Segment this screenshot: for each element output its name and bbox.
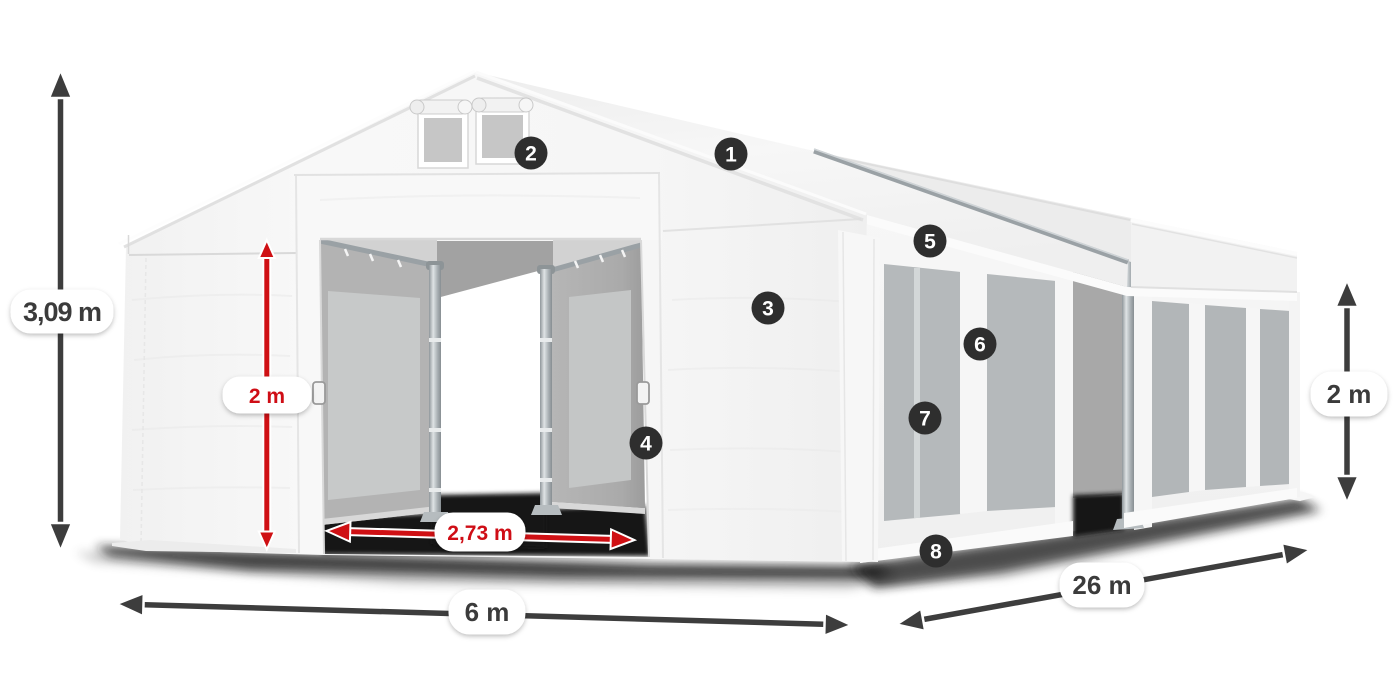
svg-text:2,73 m: 2,73 m [447,522,512,545]
svg-text:6: 6 [974,334,986,357]
svg-text:2 m: 2 m [249,385,285,408]
svg-text:8: 8 [930,541,942,564]
svg-text:26 m: 26 m [1072,570,1131,600]
svg-text:7: 7 [919,408,931,431]
svg-text:2 m: 2 m [1327,379,1372,409]
svg-text:3: 3 [762,298,774,321]
svg-text:3,09 m: 3,09 m [23,297,101,327]
svg-text:1: 1 [725,144,737,167]
svg-text:5: 5 [924,231,936,254]
svg-text:6 m: 6 m [465,597,510,627]
svg-text:4: 4 [640,433,652,456]
svg-text:2: 2 [525,143,537,166]
